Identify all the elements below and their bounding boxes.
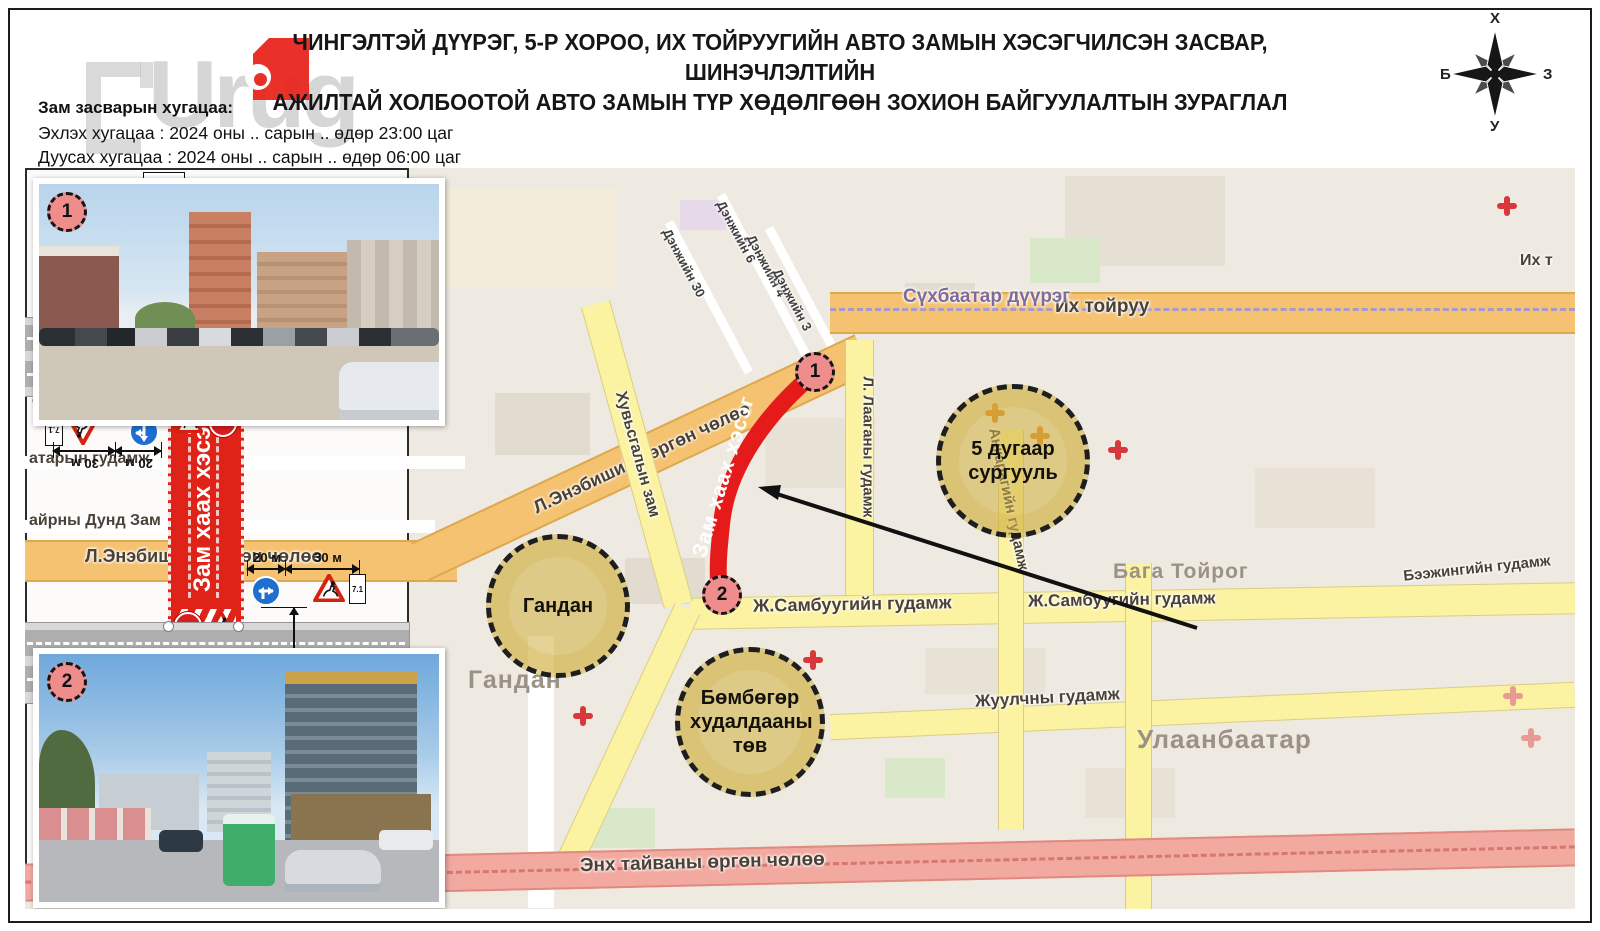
hospital-cross-icon: [573, 706, 593, 726]
place-label-ulaanbaatar: Улаанбаатар: [1137, 724, 1312, 755]
map-point-1: 1: [795, 352, 835, 392]
dim-line: [285, 568, 359, 570]
dim-guide: [115, 442, 116, 458]
street-label-laagan: Л. Лааганы гудамж: [860, 377, 877, 537]
photo-2: 2: [33, 648, 445, 908]
title-line-1: ЧИНГЭЛТЭЙ ДҮҮРЭГ, 5-Р ХОРОО, ИХ ТОЙРУУГИ…: [210, 28, 1350, 88]
street-label-toiruu-right: Их т: [1520, 252, 1553, 270]
street-label-sambuu-east: Ж.Самбуугийн гудамж: [1028, 588, 1216, 611]
photo2-marker: 2: [47, 662, 87, 702]
dim-guide: [53, 442, 54, 458]
dim-label-30m: 30 м: [63, 456, 107, 471]
dim-tick: [261, 607, 307, 608]
dim-guide: [161, 442, 162, 458]
photo1-marker: 1: [47, 192, 87, 232]
extent-plate: 7.1: [349, 574, 366, 604]
compass-east-label: З: [1543, 66, 1552, 83]
map-block: [495, 393, 590, 455]
roadworks-sign-icon: [313, 574, 345, 607]
poi-label-gandan: Гандан: [523, 594, 593, 618]
photo1-tower: [189, 212, 251, 334]
dim-label-20m: 20 м: [119, 456, 159, 471]
title-line-2: АЖИЛТАЙ ХОЛБООТОЙ АВТО ЗАМЫН ТҮР ХӨДӨЛГӨ…: [210, 88, 1350, 118]
photo2-dark-car: [159, 830, 203, 852]
photo2-silver-car: [285, 850, 381, 892]
node-dot: [163, 621, 174, 632]
poi-circle-school: 5 дугаар сургууль: [936, 384, 1090, 538]
street-label-dund: айрны Дунд Зам: [29, 512, 161, 530]
photo-1: 1: [33, 178, 445, 426]
dim-label-30m: 30 м: [303, 550, 353, 565]
traffic-plan-poster: { "header": { "title_line1": "ЧИНГЭЛТЭЙ …: [0, 0, 1600, 931]
node-dot: [233, 621, 244, 632]
poi-circle-bumbugur: Бөмбөгөр худалдааны төв: [675, 647, 825, 797]
hospital-cross-icon: [1497, 196, 1517, 216]
photo2-marker-number: 2: [62, 671, 73, 693]
compass-west-label: Б: [1440, 66, 1451, 83]
dim-line: [115, 450, 161, 452]
lane-dash: [27, 642, 405, 645]
dim-guide: [247, 560, 248, 576]
photo1-car-row: [39, 328, 439, 346]
map-park: [885, 758, 945, 798]
photo2-bus: [223, 814, 275, 886]
map-block: [1255, 468, 1375, 528]
page-title: ЧИНГЭЛТЭЙ ДҮҮРЭГ, 5-Р ХОРОО, ИХ ТОЙРУУГИ…: [210, 28, 1350, 118]
panel-closure-label: Зам хаах хэсэг: [189, 432, 217, 592]
map-park: [1030, 238, 1100, 283]
city-map: Л.Энэбишийн өргөн чөлөө Хувьсгалын зам Л…: [25, 168, 1575, 909]
mandatory-direction-sign-icon: [251, 576, 281, 611]
schedule-heading: Зам засварын хугацаа:: [38, 98, 233, 118]
place-label-baga-toirog: Бага Тойрог: [1113, 560, 1249, 584]
hospital-cross-icon: [1503, 686, 1523, 706]
photo2-white-car: [379, 830, 433, 850]
schedule-end: Дуусах хугацаа : 2024 оны .. сарын .. өд…: [38, 147, 461, 168]
poi-circle-gandan: Гандан: [486, 534, 630, 678]
photo1-building-mid: [257, 252, 347, 334]
dim-line: [247, 568, 285, 570]
poi-label-bumbugur: Бөмбөгөр худалдааны төв: [690, 686, 810, 758]
map-point-1-number: 1: [810, 361, 821, 383]
map-block: [925, 648, 1045, 694]
poi-label-school: 5 дугаар сургууль: [958, 437, 1068, 485]
compass-north-label: Х: [1490, 10, 1500, 27]
photo2-pink-wall: [39, 808, 151, 842]
compass-south-label: У: [1490, 118, 1499, 135]
district-label-sukhbaatar: Сүхбаатар дүүрэг: [903, 286, 1070, 308]
map-point-2-number: 2: [717, 584, 728, 606]
hospital-cross-icon: [803, 650, 823, 670]
photo1-marker-number: 1: [62, 201, 73, 223]
dim-label-20m: 20 м: [247, 550, 287, 565]
street-label-sambuu-west: Ж.Самбуугийн гудамж: [753, 592, 952, 616]
district-boundary-line: [830, 308, 1575, 311]
map-block: [445, 188, 615, 288]
photo1-white-car: [339, 362, 445, 420]
street-label-denj30: Дэнжийн 30: [660, 226, 709, 300]
compass-rose: Х З У Б: [1440, 12, 1550, 130]
hospital-cross-icon: [1108, 440, 1128, 460]
hospital-cross-icon: [1521, 728, 1541, 748]
dim-line: [53, 450, 115, 452]
dim-guide: [285, 560, 286, 576]
compass-star-icon: [1440, 12, 1550, 130]
schedule-start: Эхлэх хугацаа : 2024 оны .. сарын .. өдө…: [38, 123, 453, 144]
map-point-2: 2: [702, 575, 742, 615]
photo1-buildings-right: [347, 240, 439, 334]
street-label-beijing: Бээжингийн гудамж: [1403, 552, 1552, 584]
